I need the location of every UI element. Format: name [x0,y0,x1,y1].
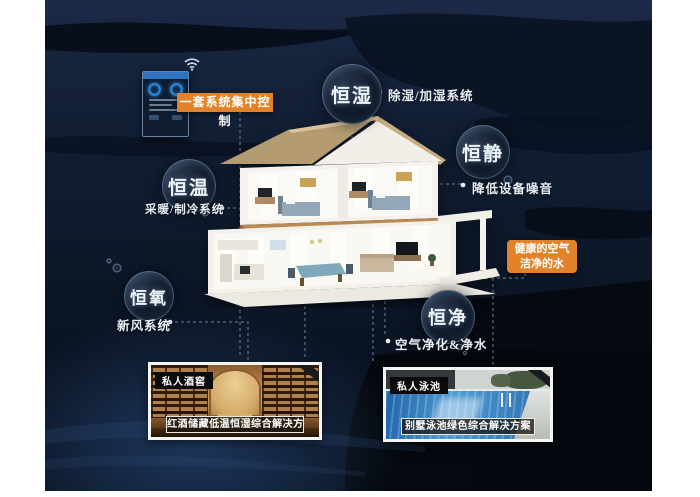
bubble-constant-oxygen: 恒氧 [124,271,174,321]
label-air-water-purification: 空气净化&净水 [395,334,487,353]
panel-header [143,72,188,79]
caption-wine-solution: 红酒储藏低温恒湿综合解决方案 [166,416,304,433]
bubble-constant-quiet: 恒静 [456,125,510,179]
label-reduce-equipment-noise: 降低设备噪音 [472,178,553,197]
photo-private-wine-cellar: 私人酒窖 红酒储藏低温恒湿综合解决方案 [148,362,322,440]
tag-private-pool: 私人泳池 [390,377,448,394]
central-control-callout: 一套系统集中控制 [177,93,273,112]
photo-private-pool: 私人泳池 别墅泳池绿色综合解决方案 [383,367,553,442]
panel-button [149,115,159,120]
panel-dial-left [148,83,161,96]
healthy-air-clean-water-callout: 健康的空气 洁净的水 [507,240,577,273]
label-fresh-air-system: 新风系统 [117,315,171,334]
infographic-stage: 一套系统集中控制 恒湿 恒静 恒温 恒氧 恒净 除湿/加湿系统 降低设备噪音 采… [0,0,700,497]
caption-pool-solution: 别墅泳池绿色综合解决方案 [401,418,536,435]
wifi-icon [183,55,201,71]
dark-canvas: 一套系统集中控制 恒湿 恒静 恒温 恒氧 恒净 除湿/加湿系统 降低设备噪音 采… [45,0,652,491]
label-dehumidify-humidify-system: 除湿/加湿系统 [388,85,473,104]
label-heating-cooling-system: 采暖/制冷系统 [145,201,219,217]
bubble-constant-humidity: 恒湿 [322,64,382,124]
panel-button [172,115,182,120]
tag-private-wine-cellar: 私人酒窖 [155,372,213,389]
house-cutaway-illustration [200,108,500,308]
